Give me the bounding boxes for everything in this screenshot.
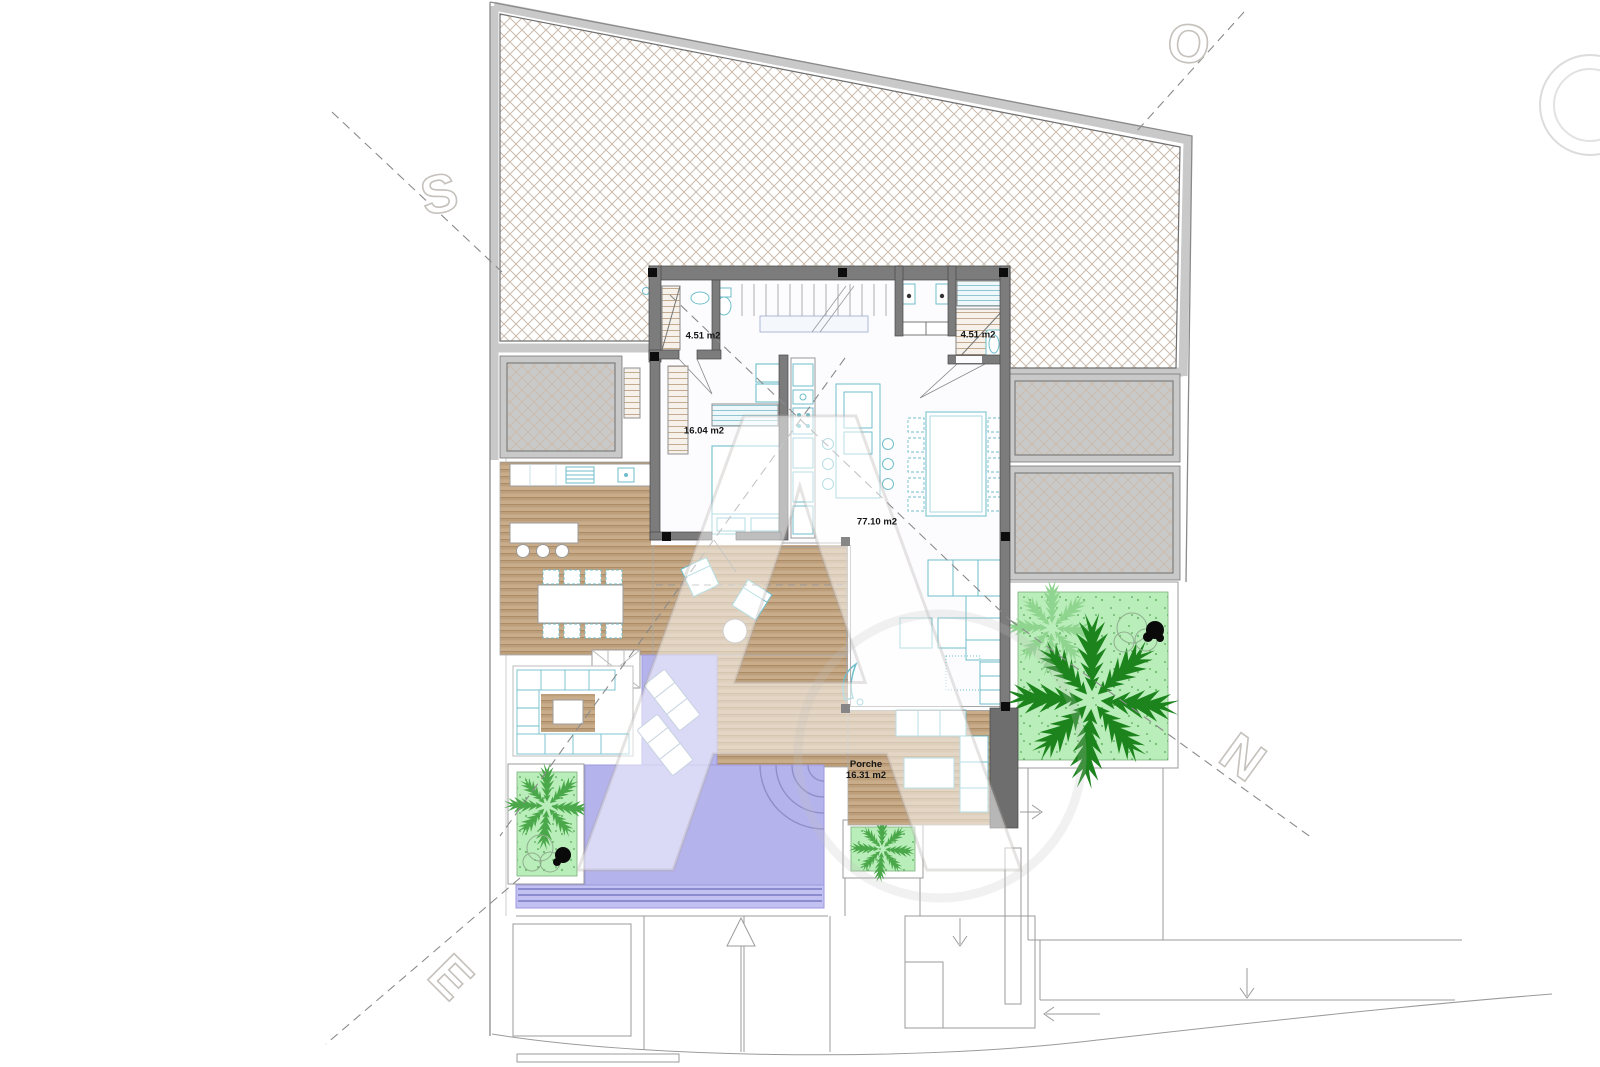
down-arrow-2-icon (1240, 968, 1254, 998)
watermark-letter-n: N (1209, 722, 1276, 793)
room-label-bedroom: 16.04 m2 (684, 426, 724, 437)
room-label-porch: Porche 16.31 m2 (846, 759, 886, 781)
floor-plan-page: A S O N E 4.51 m2 4.51 m2 16.04 m2 77.10… (0, 0, 1600, 1067)
watermark-letter-o: O (1164, 12, 1214, 77)
floor-plan-canvas: A S O N E (0, 0, 1600, 1067)
watermark-letter-s: S (415, 161, 463, 227)
room-label-living: 77.10 m2 (857, 517, 897, 528)
porch-name: Porche (846, 759, 886, 770)
watermark-letter-e: E (417, 943, 485, 1011)
left-arrow-icon (1044, 1007, 1100, 1021)
room-label-bath-right: 4.51 m2 (961, 330, 996, 341)
room-label-bath-left: 4.51 m2 (686, 331, 721, 342)
porch-area: 16.31 m2 (846, 770, 886, 781)
